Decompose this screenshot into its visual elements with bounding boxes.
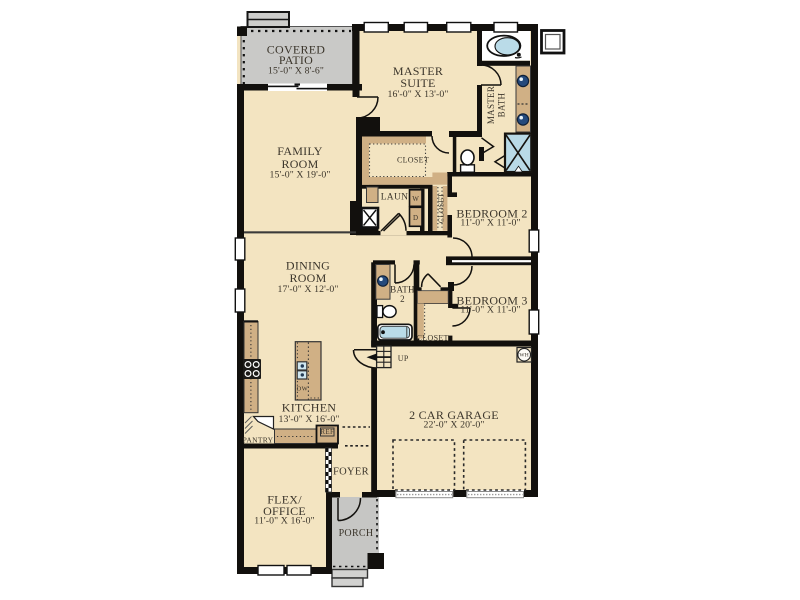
svg-text:DW: DW [297, 385, 309, 392]
svg-text:KITCHEN: KITCHEN [282, 401, 336, 415]
svg-text:CLOSET: CLOSET [437, 193, 446, 223]
svg-text:FOYER: FOYER [333, 467, 369, 478]
svg-text:SUITE: SUITE [400, 76, 435, 90]
svg-text:UP: UP [398, 354, 409, 363]
svg-text:PANTRY: PANTRY [243, 435, 274, 444]
svg-text:CLOSET: CLOSET [397, 156, 429, 165]
svg-text:11'-0" X 16'-0": 11'-0" X 16'-0" [254, 515, 315, 526]
svg-text:MASTER: MASTER [486, 86, 496, 124]
svg-text:D: D [413, 214, 418, 222]
svg-text:15'-0" X 8'-6": 15'-0" X 8'-6" [268, 66, 324, 77]
svg-text:LAUN: LAUN [381, 192, 409, 202]
svg-text:ROOM: ROOM [289, 271, 326, 285]
svg-text:22'-0" X 20'-0": 22'-0" X 20'-0" [424, 420, 485, 431]
svg-text:CLOSET: CLOSET [417, 334, 449, 343]
svg-text:15'-0" X 19'-0": 15'-0" X 19'-0" [270, 170, 331, 181]
svg-text:13'-0" X 16'-0": 13'-0" X 16'-0" [279, 414, 340, 425]
svg-text:17'-0" X 12'-0": 17'-0" X 12'-0" [278, 284, 339, 295]
svg-text:11'-0" X 11'-0": 11'-0" X 11'-0" [460, 305, 520, 316]
svg-text:WH: WH [519, 353, 529, 359]
svg-text:PORCH: PORCH [339, 528, 374, 539]
svg-text:2: 2 [400, 294, 405, 304]
svg-text:11'-0" X 11'-0": 11'-0" X 11'-0" [460, 218, 520, 229]
svg-text:W: W [412, 195, 419, 203]
svg-text:BATH: BATH [497, 92, 507, 117]
svg-text:16'-0" X 13'-0": 16'-0" X 13'-0" [388, 89, 449, 100]
svg-text:REF: REF [320, 428, 334, 436]
